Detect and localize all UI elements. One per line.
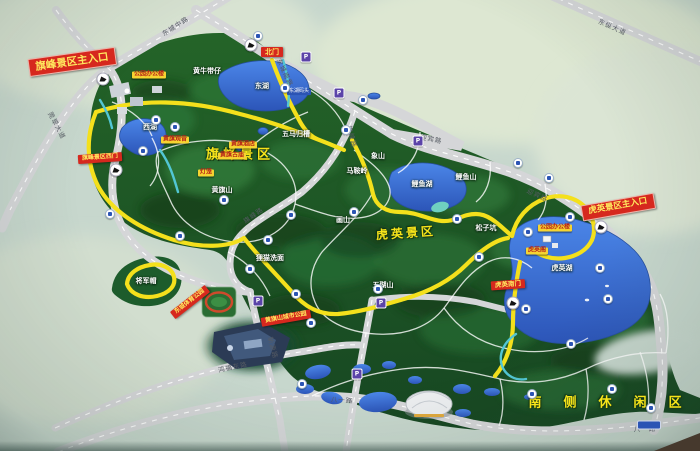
dot-icon bbox=[280, 83, 290, 93]
dot-icon bbox=[527, 389, 537, 399]
place-label-3: 象山 bbox=[371, 152, 385, 160]
gate-label-4: 黄旗山城市公园 bbox=[261, 309, 312, 326]
place-label-13: 将军帽 bbox=[136, 277, 157, 285]
dot-icon bbox=[565, 212, 575, 222]
dot-icon bbox=[253, 31, 263, 41]
gate-label-6: 虎英南门 bbox=[491, 279, 526, 291]
pill-icon bbox=[637, 421, 661, 430]
dot-icon bbox=[521, 304, 531, 314]
place-label-4: 马鞍岭 bbox=[347, 167, 368, 175]
dot-icon bbox=[263, 235, 273, 245]
parking-icon: P bbox=[253, 296, 264, 307]
dot-icon bbox=[349, 207, 359, 217]
parking-icon: P bbox=[334, 88, 345, 99]
dot-icon bbox=[138, 146, 148, 156]
road-label-5: 迎宾路 bbox=[525, 188, 549, 204]
poi-label-4: 灯笼 bbox=[198, 170, 214, 177]
region-title-2: 南侧休闲区 bbox=[528, 397, 700, 412]
gate-icon bbox=[595, 221, 608, 234]
dot-icon bbox=[607, 384, 617, 394]
dot-icon bbox=[245, 264, 255, 274]
poi-label-2: 黄旗观音 bbox=[161, 137, 189, 144]
dot-icon bbox=[595, 263, 605, 273]
dot-icon bbox=[151, 115, 161, 125]
dot-icon bbox=[175, 231, 185, 241]
place-label-6: 鲤鱼湖 bbox=[412, 180, 433, 188]
place-label-8: 黄旗山 bbox=[212, 186, 233, 194]
place-label-2: 五马归槽 bbox=[282, 130, 310, 138]
road-label-1: 莞翠大道 bbox=[46, 111, 67, 141]
park-map-photo: 旗峰景区虎英景区南侧休闲区黄牛带仔东湖五马归槽象山马鞍岭鲤鱼山鲤鱼湖画山黄旗山西… bbox=[0, 0, 700, 451]
parking-icon: P bbox=[301, 52, 312, 63]
dot-icon bbox=[523, 227, 533, 237]
place-label-0: 黄牛带仔 bbox=[193, 67, 221, 75]
region-title-1: 虎英景区 bbox=[376, 225, 437, 243]
road-label-8: 新源路 bbox=[265, 336, 278, 360]
dot-icon bbox=[306, 318, 316, 328]
gate-label-1: 北门 bbox=[261, 47, 283, 57]
road-label-0: 东城中路 bbox=[161, 16, 190, 39]
place-label-7: 画山 bbox=[336, 216, 350, 224]
parking-icon: P bbox=[352, 369, 363, 380]
dot-icon bbox=[291, 289, 301, 299]
dot-icon bbox=[341, 125, 351, 135]
poi-label-1: 黄旗酒店 bbox=[229, 142, 257, 149]
gate-icon bbox=[110, 164, 123, 177]
dot-icon bbox=[474, 252, 484, 262]
gate-icon bbox=[507, 297, 520, 310]
pier-label-0: 东湖码头 bbox=[287, 89, 311, 95]
road-label-10: 八一路 bbox=[331, 396, 354, 405]
place-label-12: 松子坑 bbox=[476, 224, 497, 232]
dot-icon bbox=[358, 95, 368, 105]
place-label-10: 狸猫洗面 bbox=[256, 254, 284, 262]
road-label-7: 旗峰路 bbox=[243, 206, 266, 225]
place-label-14: 虎英湖 bbox=[552, 264, 573, 272]
dot-icon bbox=[566, 339, 576, 349]
gate-label-3: 东城体育公园 bbox=[170, 285, 210, 319]
poi-label-0: 公园办公楼 bbox=[132, 72, 166, 79]
dot-icon bbox=[544, 173, 554, 183]
map-labels-layer: 旗峰景区虎英景区南侧休闲区黄牛带仔东湖五马归槽象山马鞍岭鲤鱼山鲤鱼湖画山黄旗山西… bbox=[0, 0, 700, 451]
parking-icon: P bbox=[413, 136, 424, 147]
dot-icon bbox=[373, 284, 383, 294]
poi-label-6: 虎英阁 bbox=[526, 248, 548, 255]
place-label-1: 东湖 bbox=[255, 82, 269, 90]
parking-icon: P bbox=[376, 298, 387, 309]
dot-icon bbox=[513, 158, 523, 168]
poi-label-3: 黄旗古庙 bbox=[218, 153, 246, 160]
poi-label-5: 公园办公楼 bbox=[538, 225, 572, 232]
dot-icon bbox=[219, 195, 229, 205]
dot-icon bbox=[170, 122, 180, 132]
gate-label-5: 虎英景区主入口 bbox=[580, 193, 655, 221]
gate-label-2: 旗峰景区西门 bbox=[78, 152, 123, 164]
gate-icon bbox=[97, 73, 110, 86]
dot-icon bbox=[603, 294, 613, 304]
place-label-5: 鲤鱼山 bbox=[456, 173, 477, 181]
dot-icon bbox=[105, 209, 115, 219]
dot-icon bbox=[286, 210, 296, 220]
road-label-2: 东纵大道 bbox=[597, 18, 627, 37]
dot-icon bbox=[452, 214, 462, 224]
dot-icon bbox=[297, 379, 307, 389]
road-label-9: 鸿福东路 bbox=[218, 361, 249, 375]
dot-icon bbox=[646, 403, 656, 413]
